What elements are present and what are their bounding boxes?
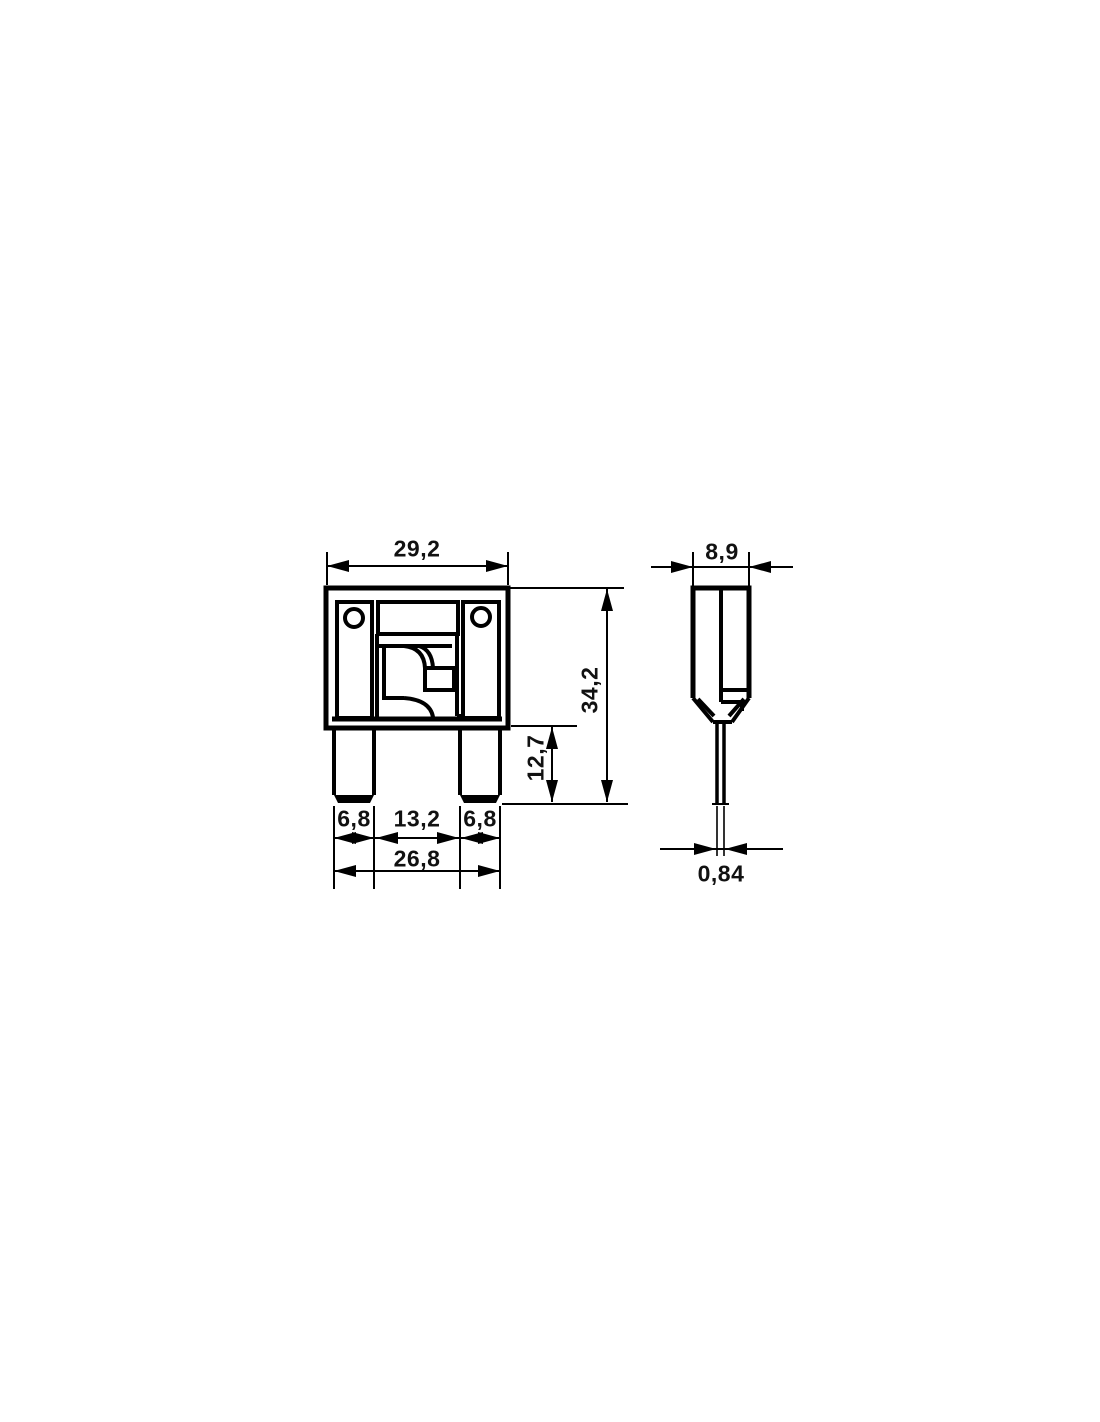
diagram-linework xyxy=(0,0,1100,1422)
dim-label-terminal-width-right: 6,8 xyxy=(463,808,496,831)
dim-label-terminal-span: 26,8 xyxy=(394,848,441,871)
dim-label-terminal-width-left: 6,8 xyxy=(337,808,370,831)
side-blade xyxy=(712,722,729,856)
dim-total-height xyxy=(502,588,628,804)
dim-label-terminal-gap: 13,2 xyxy=(394,808,441,831)
dim-label-total-height: 34,2 xyxy=(579,667,602,714)
fuse-element-window xyxy=(377,602,463,717)
fuse-leg-left xyxy=(334,728,374,803)
dim-label-body-depth: 8,9 xyxy=(705,541,738,564)
fuse-terminal-column-left xyxy=(337,602,372,718)
fuse-element-notch xyxy=(425,668,454,690)
dim-label-blade-thickness: 0,84 xyxy=(698,863,745,886)
fuse-dimension-diagram: 29,2 34,2 12,7 6,8 13,2 6,8 26,8 8,9 0,8… xyxy=(0,0,1100,1422)
dim-blade-thickness xyxy=(660,843,783,855)
dim-label-body-width: 29,2 xyxy=(394,538,441,561)
fuse-leg-right xyxy=(460,728,500,803)
fuse-front-view xyxy=(326,588,508,803)
dim-label-terminal-height: 12,7 xyxy=(525,735,548,782)
fuse-terminal-column-right xyxy=(463,602,499,718)
terminal-hole-right xyxy=(472,608,490,626)
side-blade-channel xyxy=(721,588,749,702)
side-body-taper xyxy=(693,698,749,722)
terminal-hole-left xyxy=(345,609,363,627)
fuse-side-view xyxy=(693,588,749,856)
